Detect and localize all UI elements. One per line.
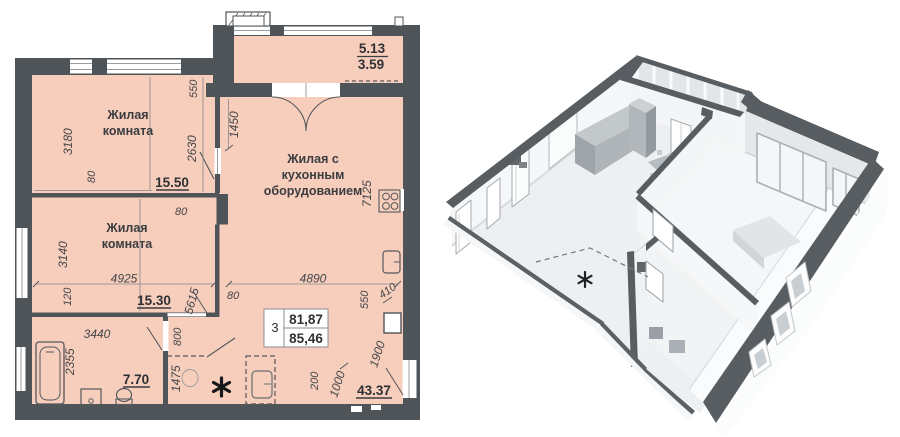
svg-text:3140: 3140 — [56, 241, 70, 268]
svg-text:кухонным: кухонным — [282, 168, 345, 182]
svg-text:15.50: 15.50 — [155, 175, 189, 190]
svg-text:7.70: 7.70 — [123, 372, 149, 387]
svg-text:4925: 4925 — [111, 272, 138, 286]
svg-text:Жилая с: Жилая с — [286, 152, 339, 166]
svg-text:80: 80 — [175, 206, 188, 218]
svg-text:2630: 2630 — [185, 135, 199, 163]
svg-text:550: 550 — [188, 79, 200, 98]
svg-text:15.30: 15.30 — [137, 293, 171, 308]
svg-text:1475: 1475 — [169, 365, 183, 392]
svg-text:комната: комната — [102, 237, 153, 251]
svg-text:оборудованием: оборудованием — [264, 184, 362, 198]
svg-text:3.59: 3.59 — [358, 57, 384, 72]
svg-text:Жилая: Жилая — [106, 108, 148, 122]
svg-text:43.37: 43.37 — [357, 383, 391, 398]
svg-text:800: 800 — [172, 327, 184, 346]
svg-text:85,46: 85,46 — [289, 331, 323, 346]
svg-text:550: 550 — [359, 290, 371, 309]
svg-text:80: 80 — [86, 170, 98, 183]
svg-text:1450: 1450 — [227, 111, 241, 138]
svg-text:200: 200 — [309, 371, 321, 391]
svg-text:120: 120 — [62, 287, 74, 306]
svg-text:Жилая: Жилая — [105, 221, 147, 235]
svg-text:3180: 3180 — [61, 128, 75, 155]
svg-text:4890: 4890 — [300, 272, 327, 286]
svg-text:7125: 7125 — [360, 180, 374, 207]
svg-text:3: 3 — [271, 320, 278, 335]
svg-text:комната: комната — [103, 124, 154, 138]
svg-text:3440: 3440 — [84, 327, 111, 341]
svg-text:5.13: 5.13 — [359, 41, 386, 56]
svg-text:81,87: 81,87 — [289, 312, 323, 327]
svg-text:80: 80 — [227, 290, 240, 302]
svg-text:2355: 2355 — [63, 348, 77, 376]
